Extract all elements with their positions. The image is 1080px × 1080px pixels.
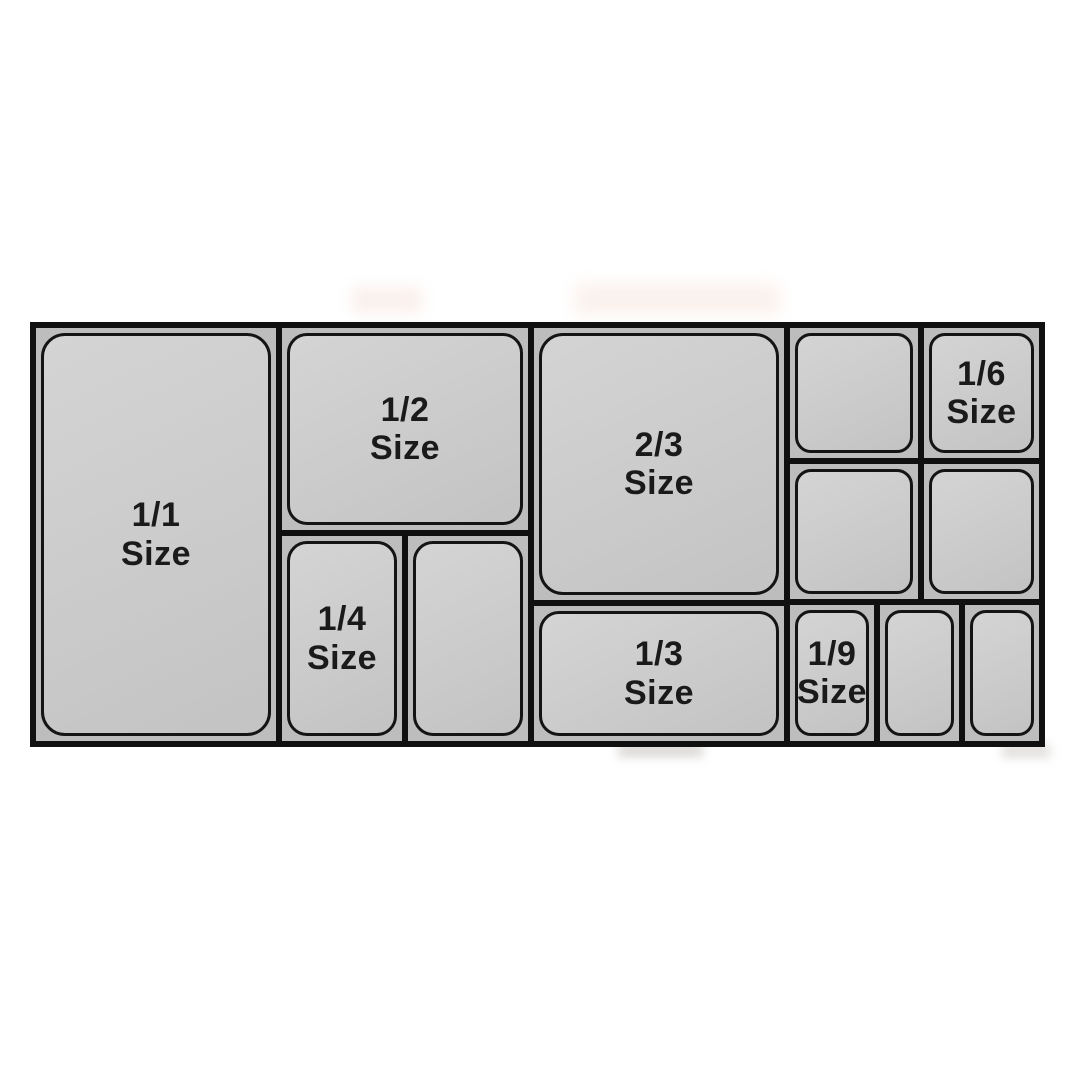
pan-fraction-label: 1/2 [370,391,440,429]
pan-fraction-label: 2/3 [624,426,694,464]
pan-2-3-label: 2/3 Size [624,426,694,502]
pan-2-3: 2/3 Size [539,333,779,595]
cell-1-3: 1/3 Size [534,606,784,741]
pan-1-1-label: 1/1 Size [121,496,191,572]
pan-1-6-label: 1/6 Size [946,355,1016,431]
pan-fraction-label: 1/3 [624,635,694,673]
cell-1-6-unlabeled-right [924,464,1039,599]
pan-1-6-unlabeled-bottom [795,469,913,594]
pan-size-label: Size [946,393,1016,431]
cell-1-9-unlabeled-2 [965,605,1039,741]
pan-1-4-unlabeled [413,541,523,736]
page: 1/1 Size 1/2 Size 1/4 Size [0,0,1080,1080]
pan-fraction-label: 1/9 [797,635,867,673]
pan-1-4-label: 1/4 Size [307,600,377,676]
pan-1-1: 1/1 Size [41,333,271,736]
cell-1-4: 1/4 Size [282,536,402,741]
cell-2-3: 2/3 Size [534,328,784,600]
pan-1-3-label: 1/3 Size [624,635,694,711]
pan-1-2-label: 1/2 Size [370,391,440,467]
photo-artifact [352,287,422,313]
cell-1-9: 1/9 Size [790,605,874,741]
pan-fraction-label: 1/6 [946,355,1016,393]
cell-1-1: 1/1 Size [36,328,276,741]
pan-size-label: Size [624,674,694,712]
pan-size-label: Size [624,464,694,502]
pan-1-9-unlabeled-1 [885,610,954,736]
pan-size-label: Size [797,673,867,711]
pan-1-6: 1/6 Size [929,333,1034,453]
pan-1-4: 1/4 Size [287,541,397,736]
cell-1-6-unlabeled-bottom [790,464,918,599]
pan-fraction-label: 1/1 [121,496,191,534]
cell-1-6-unlabeled-top [790,328,918,458]
pan-size-label: Size [370,429,440,467]
photo-artifact [575,284,780,314]
pan-1-9: 1/9 Size [795,610,869,736]
cell-1-9-unlabeled-1 [880,605,959,741]
cell-1-6: 1/6 Size [924,328,1039,458]
pan-1-9-label: 1/9 Size [797,635,867,711]
pan-size-diagram: 1/1 Size 1/2 Size 1/4 Size [30,322,1045,747]
pan-1-2: 1/2 Size [287,333,523,525]
pan-1-6-unlabeled-top [795,333,913,453]
pan-fraction-label: 1/4 [307,600,377,638]
cell-1-4-unlabeled [408,536,528,741]
pan-size-label: Size [307,639,377,677]
pan-size-label: Size [121,535,191,573]
pan-1-6-unlabeled-right [929,469,1034,594]
pan-1-9-unlabeled-2 [970,610,1034,736]
pan-1-3: 1/3 Size [539,611,779,736]
cell-1-2: 1/2 Size [282,328,528,530]
